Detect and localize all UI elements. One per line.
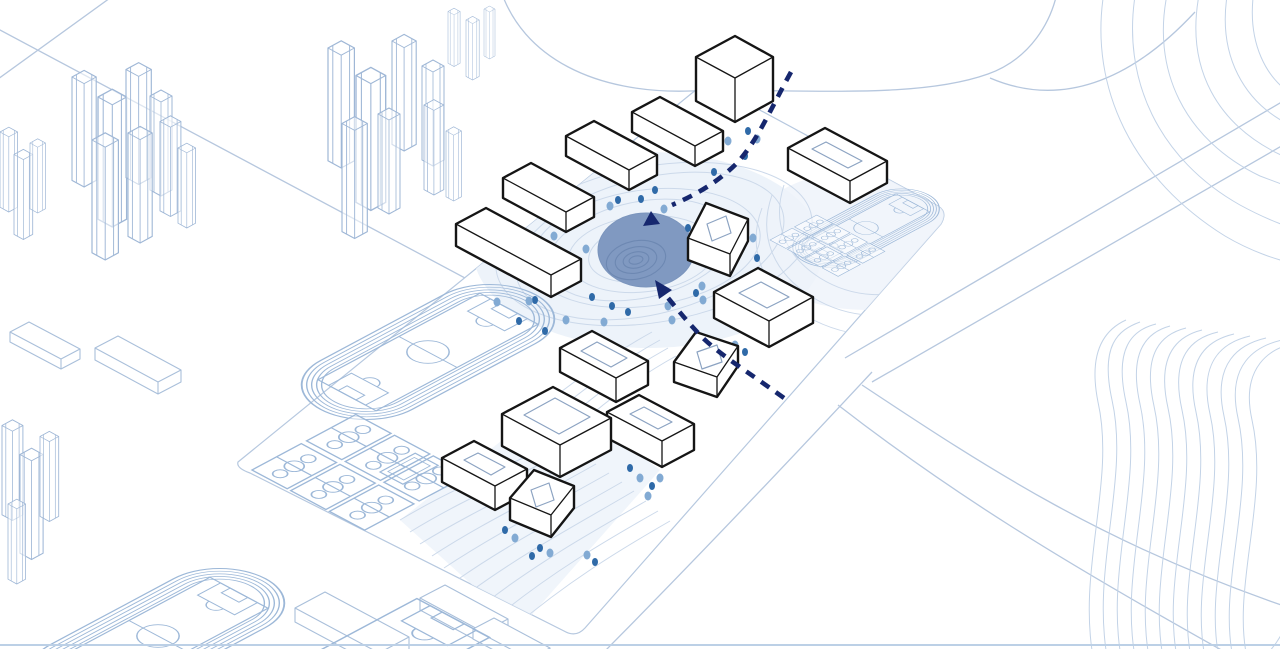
axonometric-site-diagram <box>0 0 1280 649</box>
diagram-canvas <box>0 0 1280 649</box>
